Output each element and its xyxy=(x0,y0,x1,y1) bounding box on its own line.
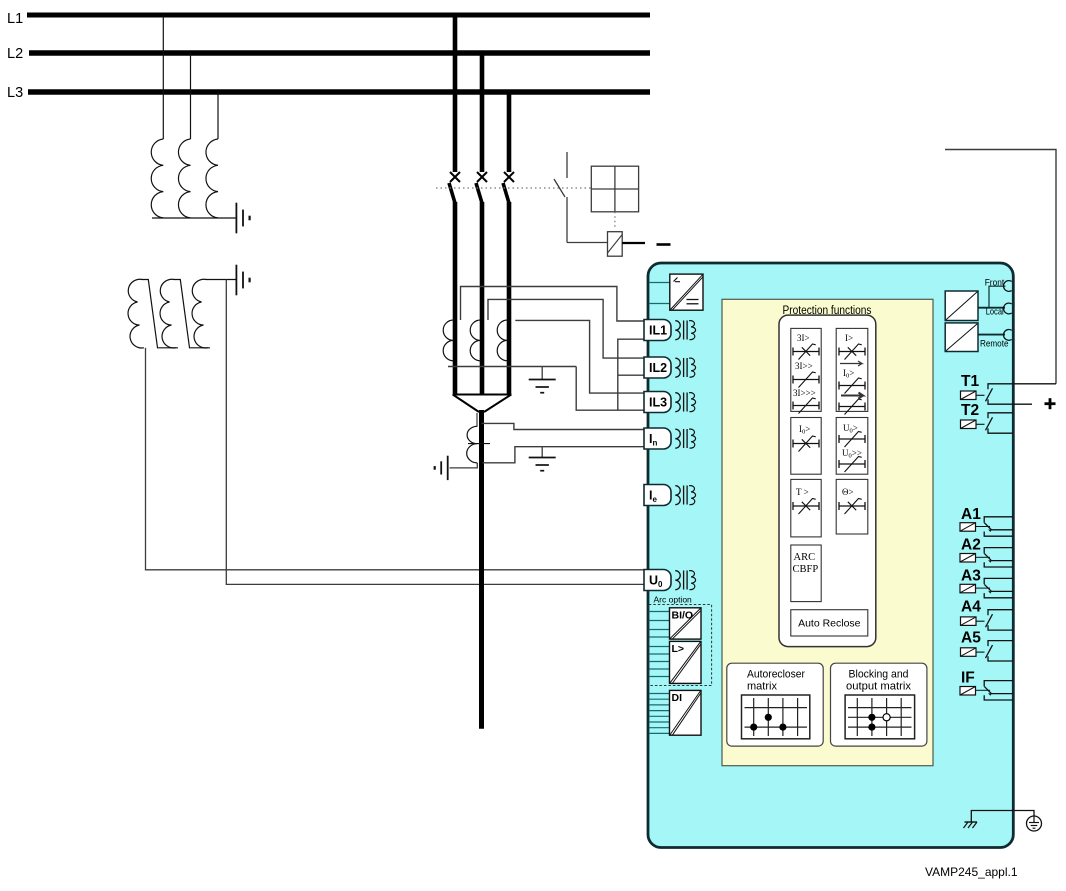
svg-text:Auto Reclose: Auto Reclose xyxy=(798,618,861,630)
svg-text:Arc option: Arc option xyxy=(654,595,693,605)
svg-text:Θ>: Θ> xyxy=(842,487,854,497)
svg-text:Front: Front xyxy=(985,277,1005,287)
svg-text:I0>: I0> xyxy=(799,424,810,436)
svg-text:IF: IF xyxy=(961,670,975,687)
svg-text:L1: L1 xyxy=(7,11,23,27)
svg-text:IL1: IL1 xyxy=(649,324,667,338)
svg-text:output matrix: output matrix xyxy=(846,681,912,693)
svg-text:L>: L> xyxy=(672,643,685,655)
svg-text:3I>: 3I> xyxy=(797,333,810,343)
svg-text:VAMP245_appl.1: VAMP245_appl.1 xyxy=(925,865,1018,879)
svg-text:IL2: IL2 xyxy=(649,361,667,375)
svg-text:U0>>: U0>> xyxy=(842,448,862,460)
svg-text:BI/O: BI/O xyxy=(672,609,694,621)
svg-text:A2: A2 xyxy=(961,537,981,554)
svg-text:IL3: IL3 xyxy=(649,396,667,410)
svg-text:A1: A1 xyxy=(961,506,981,523)
svg-text:Remote: Remote xyxy=(980,339,1009,349)
svg-text:3I>>>: 3I>>> xyxy=(793,388,816,398)
svg-text:L2: L2 xyxy=(7,46,23,62)
svg-text:DI: DI xyxy=(672,692,683,704)
svg-text:Blocking and: Blocking and xyxy=(849,669,909,681)
svg-text:Autorecloser: Autorecloser xyxy=(747,669,805,681)
svg-text:A3: A3 xyxy=(961,567,981,584)
svg-text:3I>>: 3I>> xyxy=(795,361,813,371)
svg-text:I0>: I0> xyxy=(843,368,854,380)
svg-text:L3: L3 xyxy=(7,85,23,101)
svg-text:A4: A4 xyxy=(961,599,981,616)
svg-text:A5: A5 xyxy=(961,630,981,647)
svg-text:T >: T > xyxy=(796,487,809,497)
svg-text:T1: T1 xyxy=(961,373,979,390)
svg-text:matrix: matrix xyxy=(747,681,777,693)
svg-text:I>: I> xyxy=(845,333,853,343)
svg-text:Local: Local xyxy=(986,306,1004,316)
svg-text:CBFP: CBFP xyxy=(793,564,819,575)
svg-text:ARC: ARC xyxy=(794,552,816,563)
svg-text:T2: T2 xyxy=(961,402,979,419)
